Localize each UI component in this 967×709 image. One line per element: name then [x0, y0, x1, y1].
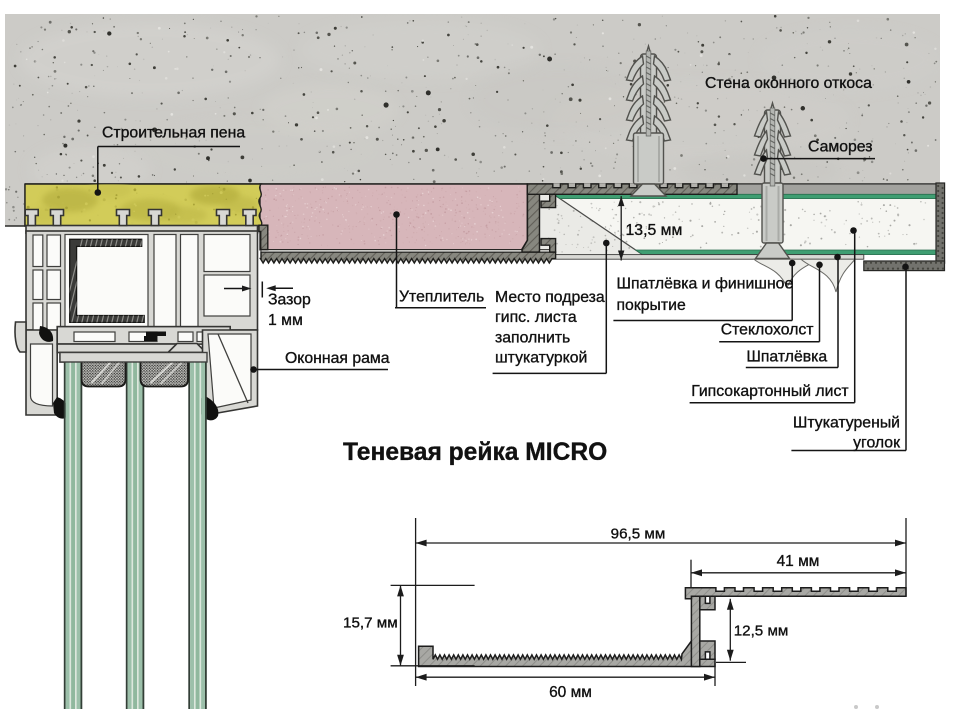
svg-text:Шпатлёвка: Шпатлёвка [746, 349, 827, 366]
svg-text:Теневая рейка MICRO: Теневая рейка MICRO [343, 439, 607, 466]
svg-text:15,7 мм: 15,7 мм [343, 615, 398, 632]
svg-text:Гипсокартонный лист: Гипсокартонный лист [691, 383, 848, 400]
svg-text:гипс. листа: гипс. листа [495, 309, 577, 326]
svg-text:Строительная пена: Строительная пена [102, 125, 245, 142]
svg-text:41 мм: 41 мм [777, 553, 820, 570]
svg-text:96,5 мм: 96,5 мм [611, 526, 666, 543]
svg-text:1 мм: 1 мм [268, 312, 303, 329]
svg-text:заполнить: заполнить [495, 330, 570, 347]
svg-text:12,5 мм: 12,5 мм [734, 623, 789, 640]
svg-text:60 мм: 60 мм [549, 684, 592, 701]
svg-text:Утеплитель: Утеплитель [399, 289, 484, 306]
svg-text:Саморез: Саморез [808, 139, 872, 156]
svg-text:штукатуркой: штукатуркой [495, 350, 587, 367]
svg-text:уголок: уголок [853, 434, 900, 451]
svg-text:покрытие: покрытие [617, 297, 686, 314]
svg-text:13,5 мм: 13,5 мм [626, 222, 683, 239]
svg-text:Место подреза: Место подреза [495, 289, 605, 306]
svg-text:Шпатлёвка и финишное: Шпатлёвка и финишное [617, 276, 794, 293]
svg-text:Оконная рама: Оконная рама [285, 350, 390, 367]
svg-text:Стеклохолст: Стеклохолст [721, 322, 814, 339]
svg-text:Стена оконного откоса: Стена оконного откоса [705, 75, 872, 92]
svg-text:Зазор: Зазор [268, 292, 311, 309]
svg-text:Штукатуреный: Штукатуреный [793, 414, 900, 431]
